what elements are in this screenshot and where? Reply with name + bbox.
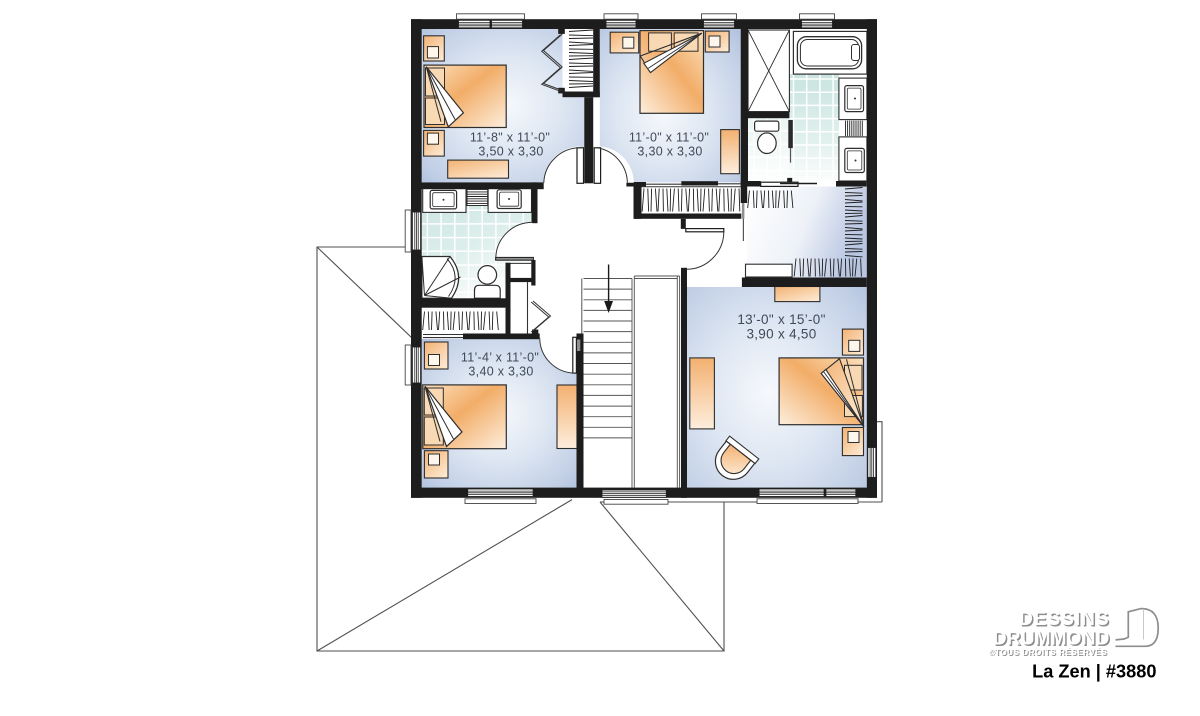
svg-text:11’-0" x 11’-0": 11’-0" x 11’-0"	[629, 131, 709, 145]
svg-text:3,40 x 3,30: 3,40 x 3,30	[468, 365, 533, 379]
svg-text:©TOUS DROITS RÉSERVÉS: ©TOUS DROITS RÉSERVÉS	[989, 648, 1108, 657]
svg-text:13’-0" x 15’-0": 13’-0" x 15’-0"	[737, 312, 825, 327]
svg-text:La Zen | #3880: La Zen | #3880	[1032, 662, 1156, 682]
svg-text:3,90 x 4,50: 3,90 x 4,50	[746, 327, 816, 342]
svg-text:3,50 x 3,30: 3,50 x 3,30	[478, 145, 543, 159]
svg-text:11’-4’ x 11’-0": 11’-4’ x 11’-0"	[461, 351, 539, 365]
svg-text:3,30 x 3,30: 3,30 x 3,30	[637, 145, 702, 159]
svg-text:11’-8" x 11’-0": 11’-8" x 11’-0"	[470, 131, 550, 145]
svg-text:DESSINS: DESSINS	[1019, 609, 1109, 630]
svg-text:DRUMMOND: DRUMMOND	[993, 629, 1110, 650]
